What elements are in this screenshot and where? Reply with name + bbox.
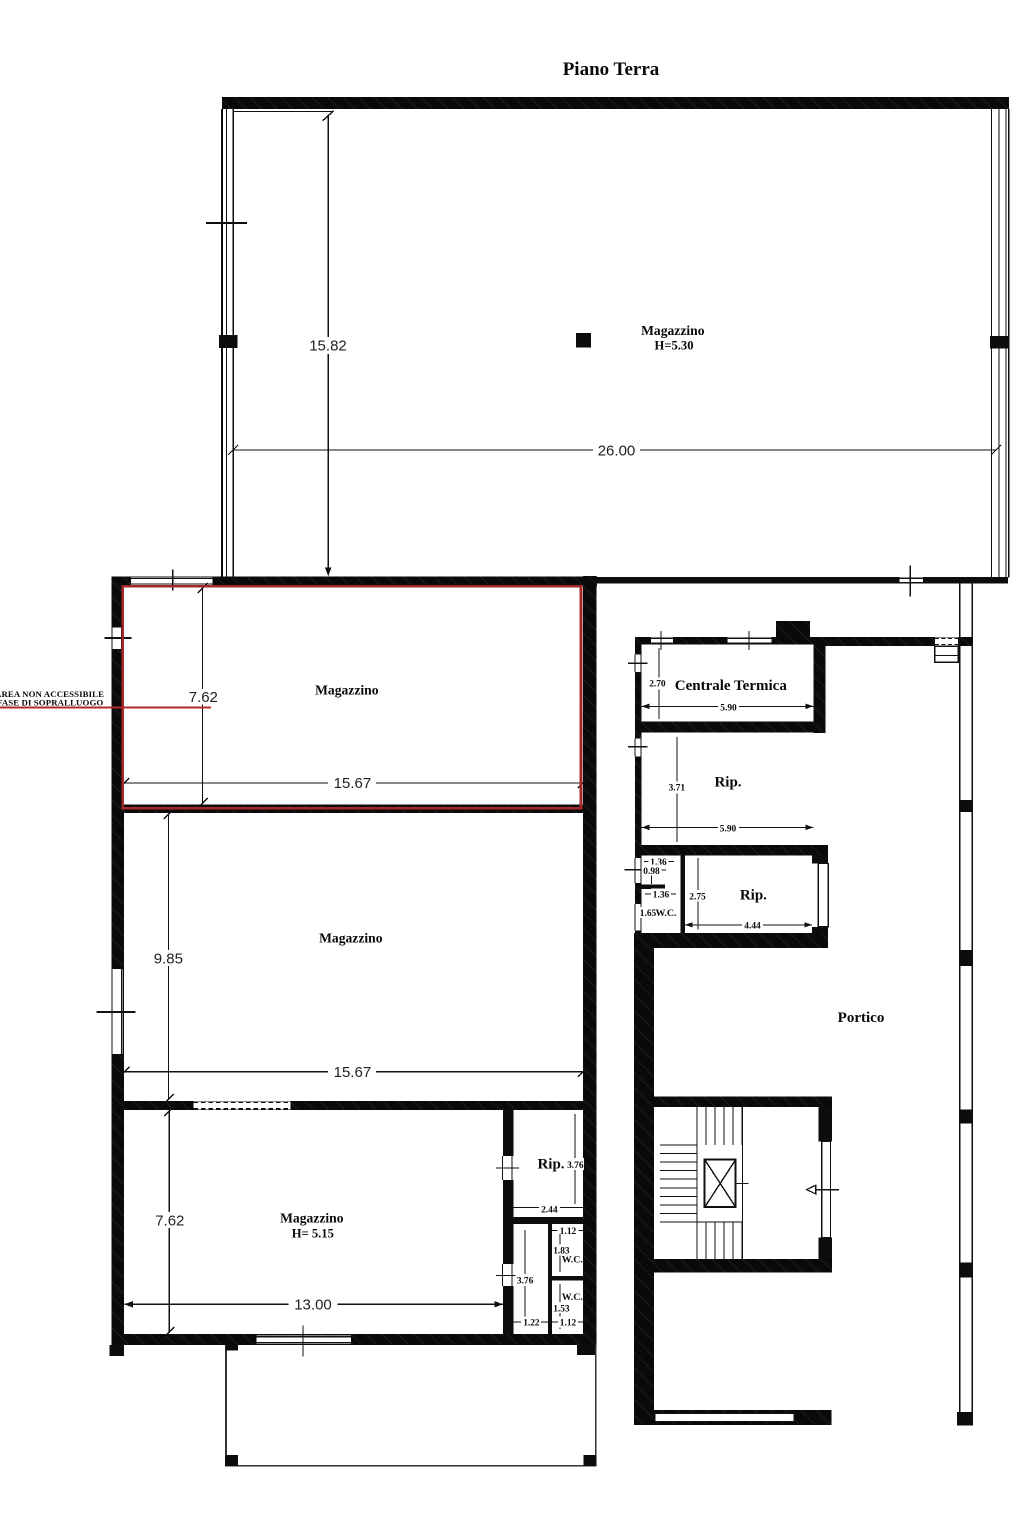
svg-text:W.C.: W.C. — [562, 1292, 584, 1303]
svg-text:H= 5.15: H= 5.15 — [292, 1227, 334, 1241]
svg-text:Magazzino: Magazzino — [641, 323, 705, 338]
svg-text:7.62: 7.62 — [155, 1212, 184, 1229]
svg-text:0.98: 0.98 — [643, 867, 660, 877]
svg-text:Magazzino: Magazzino — [319, 930, 383, 945]
svg-text:Piano Terra: Piano Terra — [563, 59, 660, 80]
svg-text:Rip.: Rip. — [740, 888, 767, 904]
svg-text:2.44: 2.44 — [541, 1206, 558, 1216]
svg-text:9.85: 9.85 — [154, 950, 183, 967]
svg-text:26.00: 26.00 — [598, 443, 636, 460]
svg-text:1.12: 1.12 — [560, 1319, 577, 1329]
svg-text:Rip.: Rip. — [537, 1156, 564, 1172]
svg-text:15.67: 15.67 — [334, 1064, 372, 1081]
svg-text:W.C.: W.C. — [655, 908, 677, 919]
svg-text:15.67: 15.67 — [334, 775, 372, 792]
svg-text:5.90: 5.90 — [720, 703, 737, 713]
svg-text:1.65: 1.65 — [640, 909, 657, 919]
svg-text:H=5.30: H=5.30 — [654, 338, 693, 352]
svg-text:FASE DI SOPRALLUOGO: FASE DI SOPRALLUOGO — [0, 698, 103, 708]
svg-text:1.36: 1.36 — [653, 891, 670, 901]
svg-text:4.44: 4.44 — [744, 922, 761, 932]
svg-text:W.C.: W.C. — [562, 1254, 584, 1265]
svg-text:2.75: 2.75 — [689, 892, 706, 902]
svg-text:3.76: 3.76 — [567, 1161, 584, 1171]
svg-text:Centrale Termica: Centrale Termica — [675, 678, 788, 694]
svg-text:1.53: 1.53 — [553, 1304, 570, 1314]
svg-text:Rip.: Rip. — [714, 775, 741, 791]
svg-text:13.00: 13.00 — [294, 1297, 332, 1314]
svg-text:5.90: 5.90 — [720, 824, 737, 834]
svg-text:7.62: 7.62 — [189, 689, 218, 706]
svg-text:Portico: Portico — [838, 1010, 885, 1026]
svg-text:3.71: 3.71 — [669, 784, 686, 794]
svg-text:Magazzino: Magazzino — [280, 1211, 344, 1226]
svg-text:3.76: 3.76 — [517, 1277, 534, 1287]
svg-text:15.82: 15.82 — [309, 338, 347, 355]
svg-text:1.22: 1.22 — [523, 1319, 540, 1329]
svg-text:1.12: 1.12 — [560, 1227, 577, 1237]
svg-text:Magazzino: Magazzino — [315, 683, 379, 698]
svg-text:2.70: 2.70 — [649, 680, 666, 690]
